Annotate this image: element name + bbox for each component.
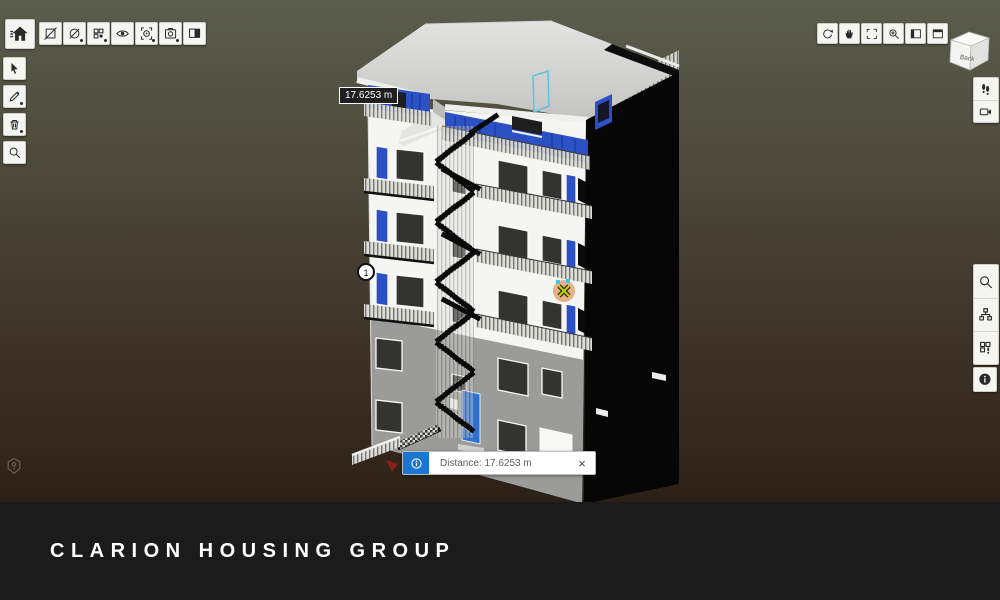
notification-accent	[403, 452, 429, 474]
orbit-tool-button[interactable]	[817, 23, 838, 44]
hide-elements-button[interactable]	[63, 22, 86, 45]
navigation-toolbar	[817, 23, 948, 44]
notification-message: Distance: 17.6253 m	[429, 452, 569, 474]
markup-toolbar	[3, 57, 26, 164]
inspect-toolbar	[973, 264, 999, 365]
visibility-button[interactable]	[111, 22, 134, 45]
walk-mode-button[interactable]	[974, 78, 998, 100]
zoom-selection-button[interactable]	[135, 22, 158, 45]
snapshot-button[interactable]	[159, 22, 182, 45]
building-side-wall	[584, 72, 679, 502]
zoom-window-button[interactable]	[883, 23, 904, 44]
info-button[interactable]	[973, 367, 997, 392]
select-tool-button[interactable]	[3, 57, 26, 80]
properties-button[interactable]	[974, 331, 998, 364]
components-button[interactable]	[87, 22, 110, 45]
model-tree-button[interactable]	[974, 298, 998, 331]
measure-point-1-label: 1	[363, 268, 368, 278]
search-button[interactable]	[974, 265, 998, 298]
markup-pencil-button[interactable]	[3, 85, 26, 108]
notification-close-button[interactable]: ×	[569, 452, 595, 474]
saved-views-button[interactable]	[183, 22, 206, 45]
fit-view-button[interactable]	[861, 23, 882, 44]
orientation-badge-icon	[4, 456, 24, 476]
home-button[interactable]	[5, 19, 35, 49]
clear-markup-button[interactable]	[3, 113, 26, 136]
side-panel-button[interactable]	[905, 23, 926, 44]
brand-title: CLARION HOUSING GROUP	[0, 540, 455, 563]
measurement-notification-bar: Distance: 17.6253 m ×	[402, 451, 596, 475]
info-circle-icon	[410, 457, 423, 470]
camera-toolbar	[973, 77, 999, 123]
zoom-search-button[interactable]	[3, 141, 26, 164]
brand-footer: CLARION HOUSING GROUP	[0, 502, 1000, 600]
main-toolbar	[39, 22, 206, 45]
pan-tool-button[interactable]	[839, 23, 860, 44]
camera-button[interactable]	[974, 100, 998, 122]
view-cube[interactable]: Back	[942, 26, 996, 80]
building-model-canvas[interactable]: 1	[0, 0, 1000, 502]
measurement-leader-tag: 17.6253 m	[339, 87, 398, 104]
3d-viewer-canvas[interactable]: 1	[0, 0, 1000, 502]
app-window: 1	[0, 0, 1000, 600]
section-plane-button[interactable]	[39, 22, 62, 45]
measure-point-1-marker[interactable]: 1	[358, 264, 374, 280]
